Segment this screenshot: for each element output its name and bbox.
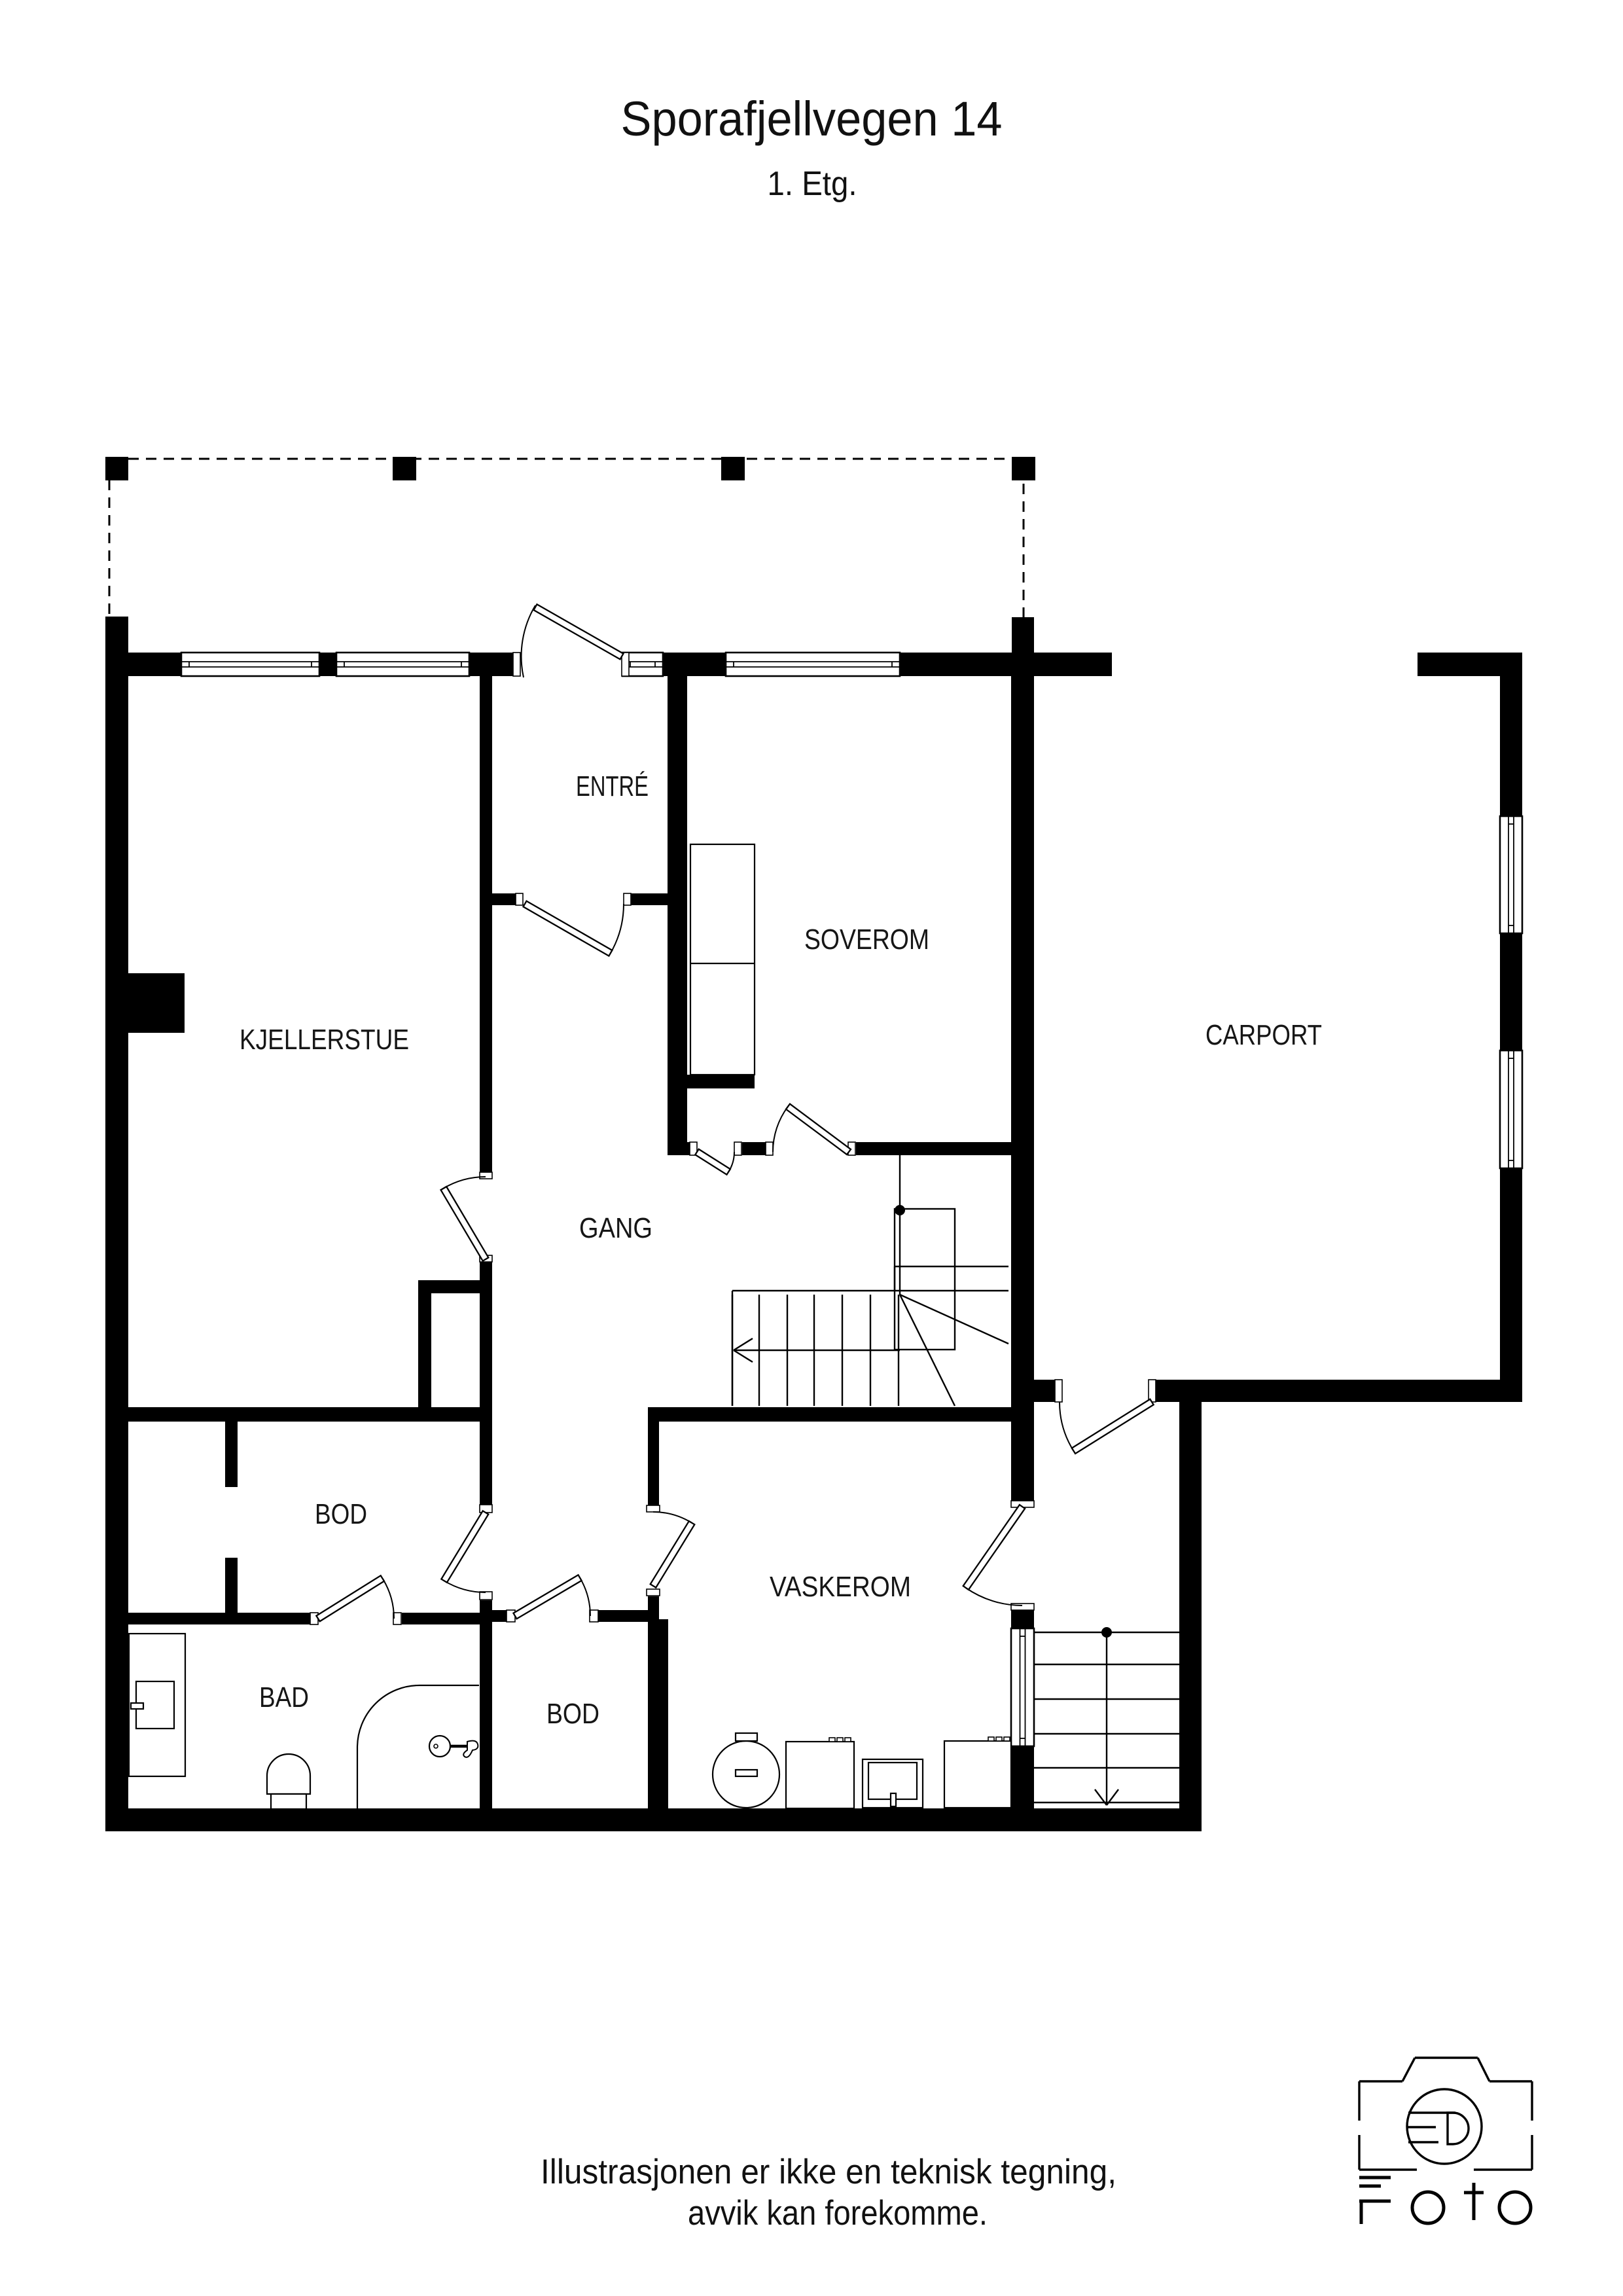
svg-text:BOD: BOD	[546, 1698, 599, 1730]
svg-text:Sporafjellvegen 14: Sporafjellvegen 14	[621, 92, 1003, 146]
svg-text:BAD: BAD	[259, 1681, 309, 1713]
svg-text:BOD: BOD	[315, 1498, 367, 1530]
svg-text:1. Etg.: 1. Etg.	[768, 165, 857, 203]
svg-text:SOVEROM: SOVEROM	[804, 924, 929, 956]
svg-text:KJELLERSTUE: KJELLERSTUE	[240, 1024, 409, 1056]
svg-text:GANG: GANG	[579, 1212, 652, 1244]
svg-text:ENTRÉ: ENTRÉ	[576, 770, 649, 802]
svg-text:avvik kan forekomme.: avvik kan forekomme.	[688, 2194, 988, 2233]
svg-text:Illustrasjonen er ikke en tekn: Illustrasjonen er ikke en teknisk tegnin…	[541, 2153, 1116, 2191]
svg-text:CARPORT: CARPORT	[1205, 1019, 1322, 1051]
svg-text:VASKEROM: VASKEROM	[770, 1571, 911, 1603]
